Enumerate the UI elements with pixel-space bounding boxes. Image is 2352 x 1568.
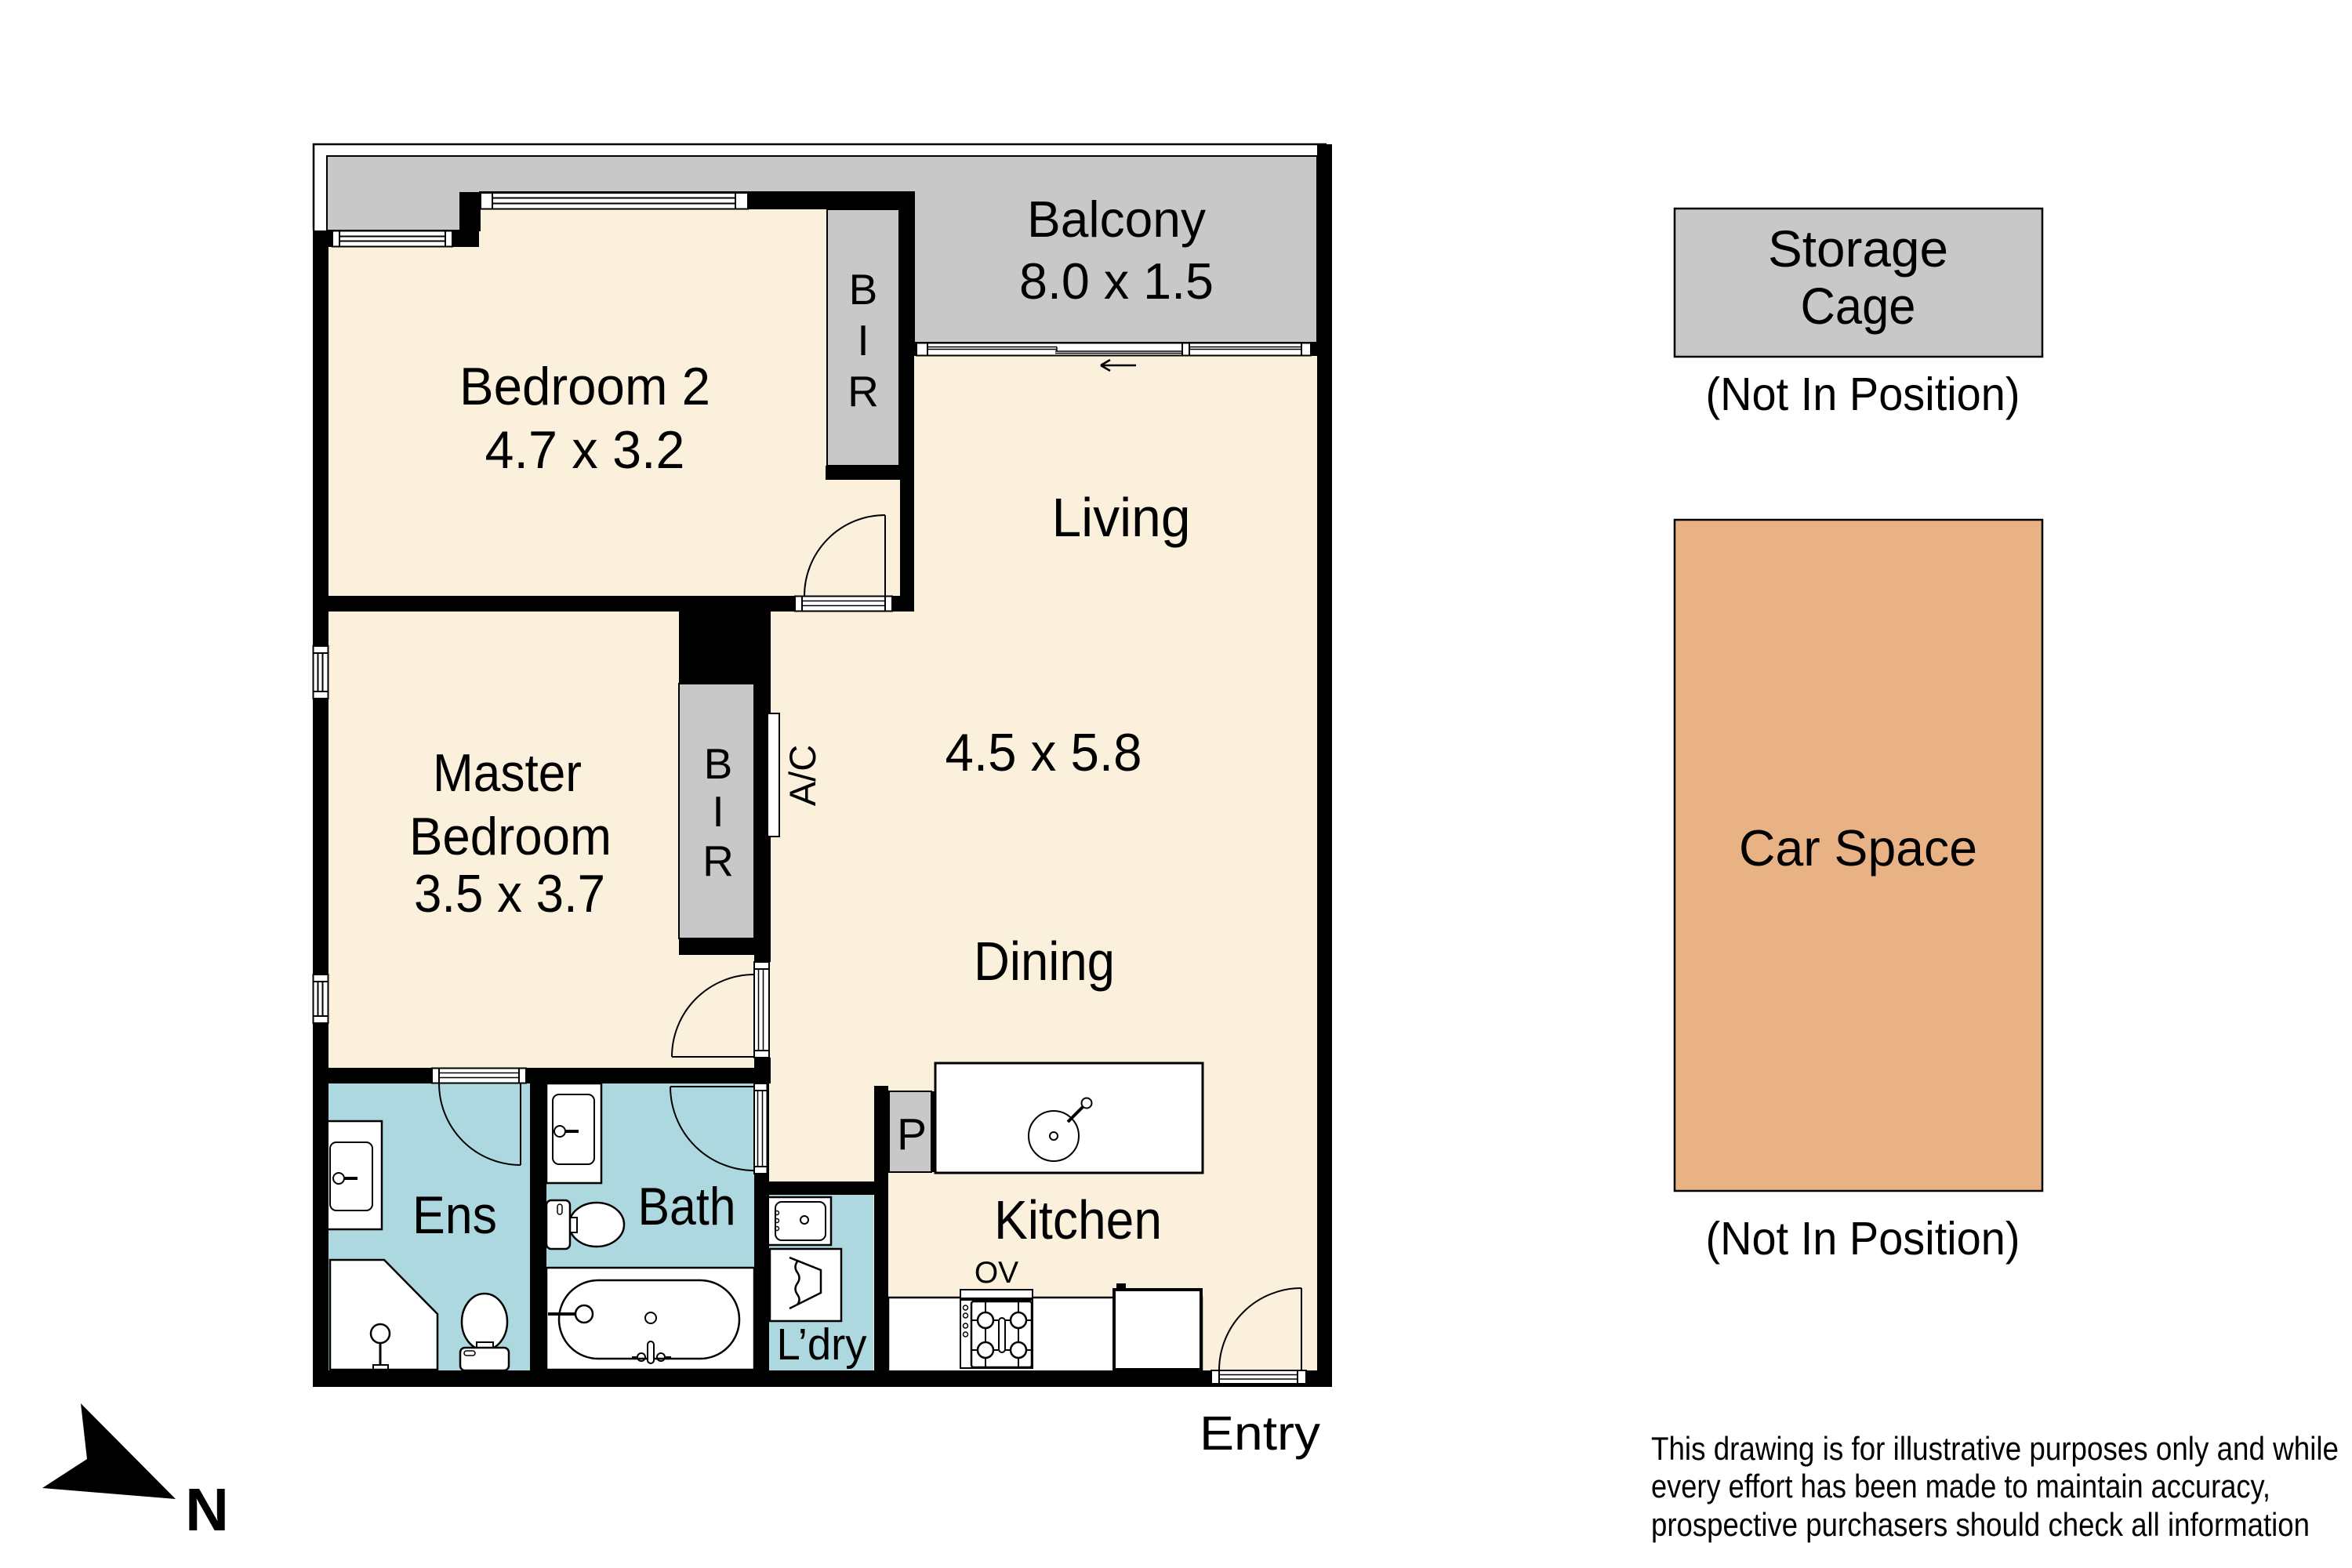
svg-text:4.7 x 3.2: 4.7 x 3.2 (485, 420, 685, 480)
svg-text:Car Space: Car Space (1739, 819, 1977, 877)
svg-text:This drawing is for illustrati: This drawing is for illustrative purpose… (1651, 1430, 2339, 1467)
svg-text:(Not In Position): (Not In Position) (1706, 368, 2020, 420)
svg-text:OV: OV (975, 1256, 1018, 1290)
svg-text:(Not In Position): (Not In Position) (1706, 1213, 2020, 1265)
svg-text:B: B (704, 739, 733, 788)
svg-text:every effort has been made to: every effort has been made to maintain a… (1651, 1468, 2270, 1504)
svg-text:B: B (849, 265, 878, 314)
svg-text:Ens: Ens (412, 1185, 497, 1245)
svg-text:Entry: Entry (1200, 1406, 1321, 1460)
svg-text:N: N (185, 1476, 229, 1544)
svg-text:Cage: Cage (1801, 277, 1916, 335)
svg-text:Dining: Dining (974, 931, 1115, 992)
svg-text:I: I (857, 316, 869, 365)
svg-text:4.5 x 5.8: 4.5 x 5.8 (946, 723, 1142, 782)
svg-text:Storage: Storage (1768, 220, 1948, 278)
svg-text:L’dry: L’dry (777, 1319, 867, 1370)
svg-text:Kitchen: Kitchen (994, 1189, 1162, 1250)
svg-text:prospective purchasers should: prospective purchasers should check all … (1651, 1506, 2310, 1543)
svg-text:Master: Master (433, 743, 582, 803)
svg-text:8.0 x 1.5: 8.0 x 1.5 (1019, 252, 1214, 310)
svg-text:Bath: Bath (638, 1177, 736, 1236)
svg-text:R: R (848, 367, 879, 416)
svg-text:I: I (712, 787, 724, 836)
svg-text:P: P (897, 1109, 927, 1160)
svg-text:Balcony: Balcony (1027, 191, 1206, 248)
svg-text:Living: Living (1052, 487, 1191, 548)
svg-text:Bedroom 2: Bedroom 2 (459, 357, 710, 416)
svg-text:A/C: A/C (782, 745, 823, 806)
svg-text:3.5 x 3.7: 3.5 x 3.7 (414, 864, 605, 924)
svg-text:R: R (702, 837, 734, 885)
svg-text:Bedroom: Bedroom (409, 807, 612, 866)
